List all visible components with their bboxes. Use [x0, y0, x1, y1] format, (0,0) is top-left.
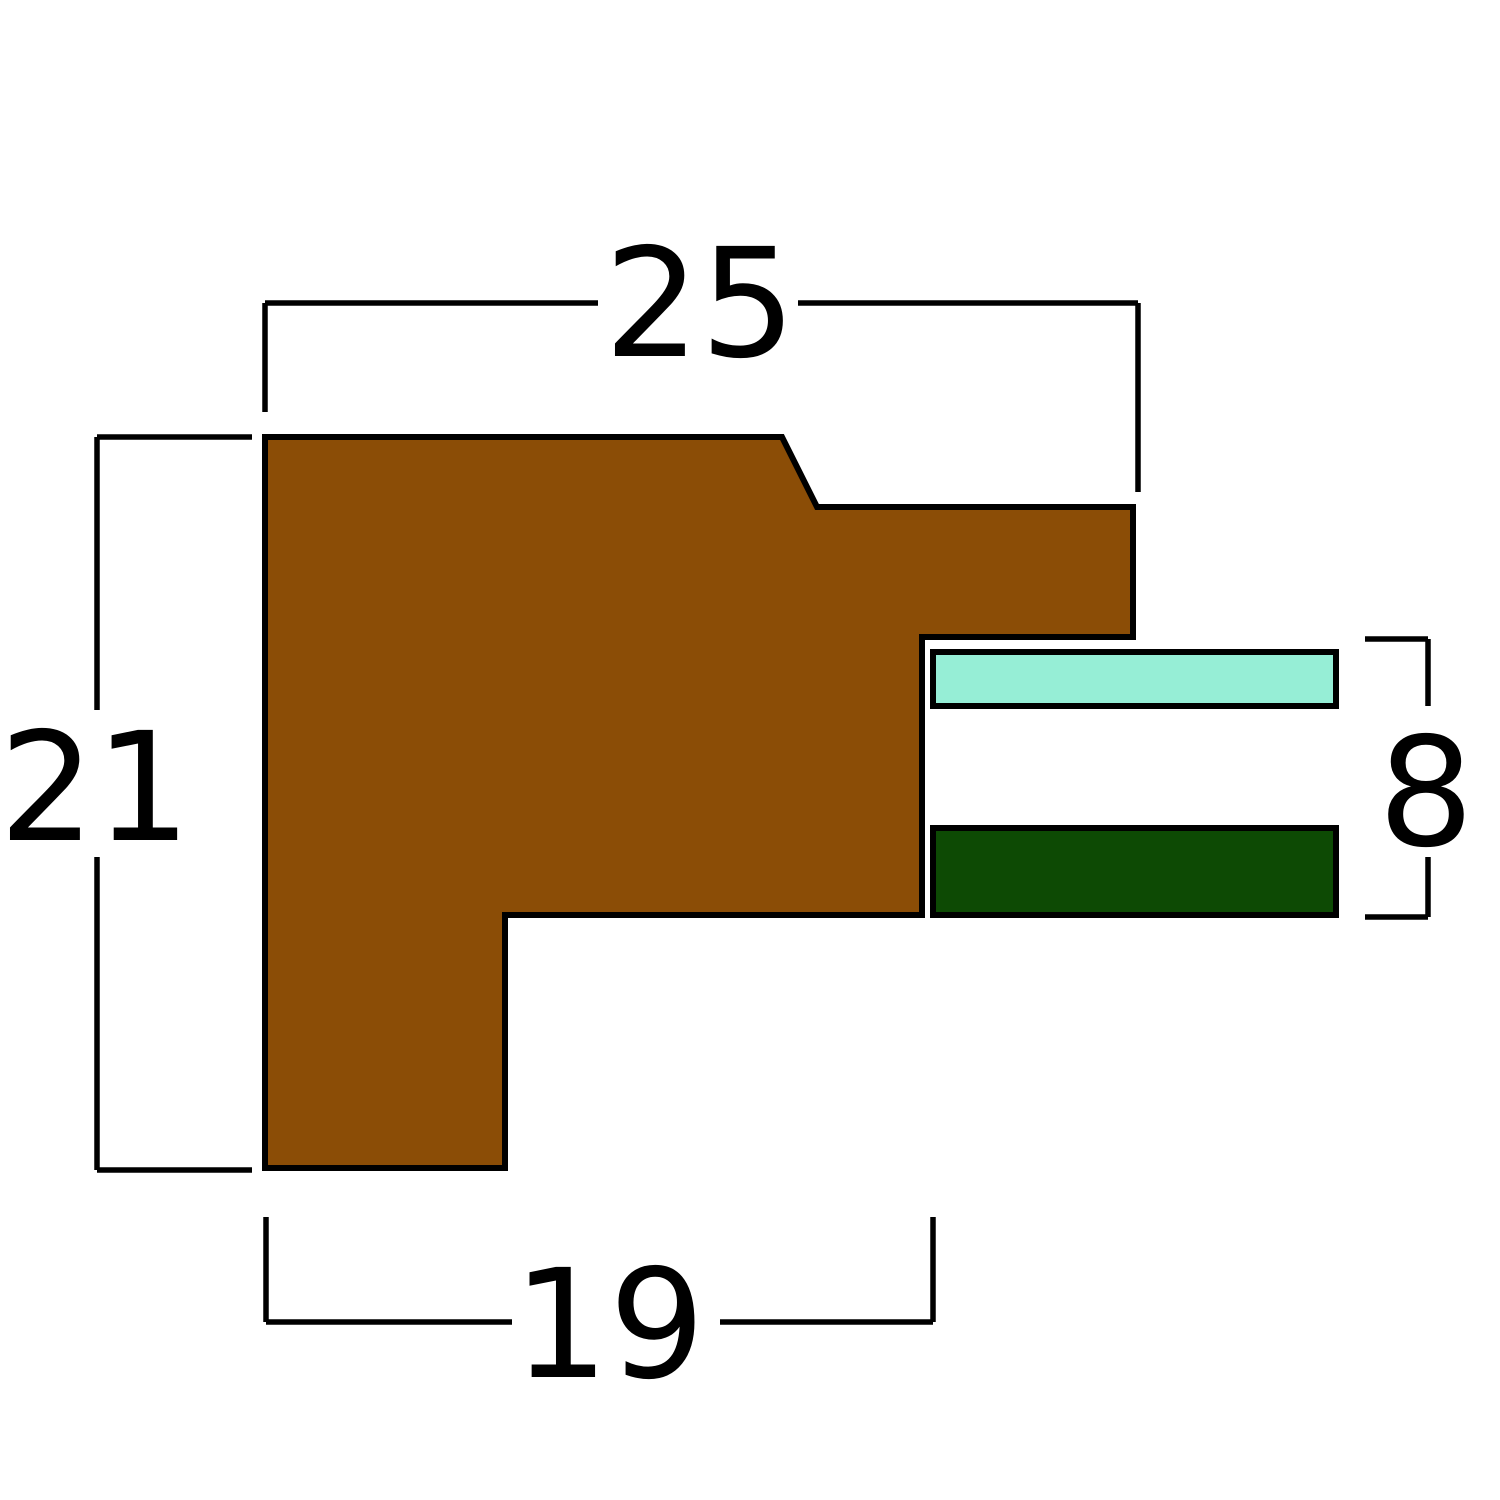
dimension-rabbet: 19	[266, 1217, 933, 1413]
backing-board-bar	[933, 828, 1336, 915]
dimension-stack-label: 8	[1378, 705, 1474, 881]
glass-strip-bar	[933, 652, 1336, 706]
frame-moulding-profile-shape	[265, 437, 1133, 1168]
moulding-profile-drawing: 25 21 19 8	[0, 0, 1500, 1500]
dimension-height-label: 21	[0, 700, 191, 876]
drawing-stage: 25 21 19 8	[0, 0, 1500, 1500]
dimension-height: 21	[0, 437, 252, 1170]
dimension-stack: 8	[1365, 639, 1474, 917]
dimension-rabbet-label: 19	[513, 1237, 705, 1413]
dimension-width-label: 25	[604, 216, 796, 392]
